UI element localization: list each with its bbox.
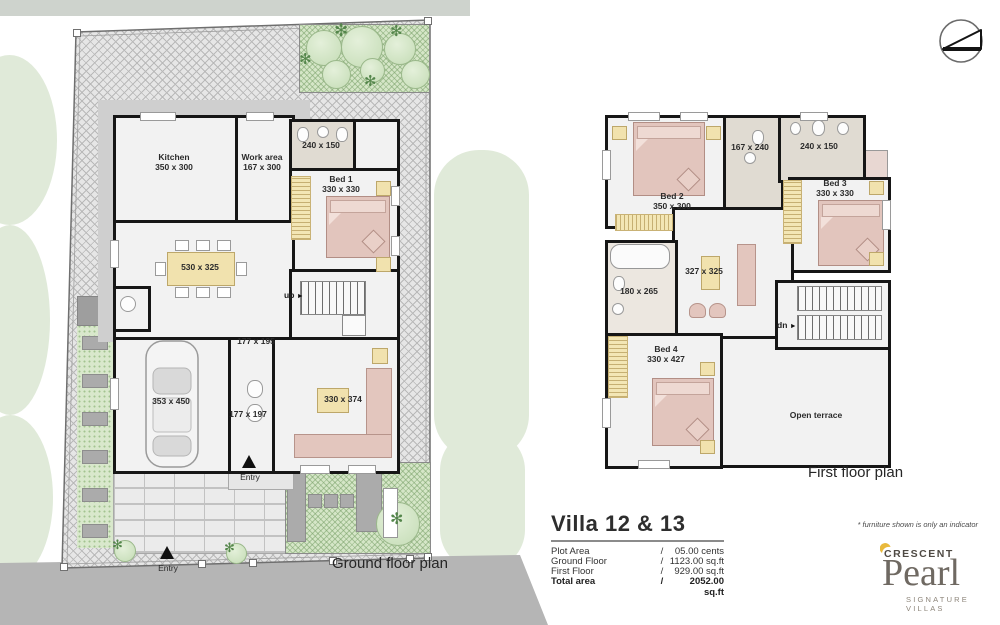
bed2-label: Bed 2350 x 300 [644, 191, 700, 211]
dining-chair [196, 240, 210, 251]
armchair [689, 303, 706, 318]
tree [322, 60, 351, 89]
brand-tagline: SIGNATURE VILLAS [906, 595, 1000, 613]
staircase-ground [300, 281, 366, 315]
dining-chair [236, 262, 247, 276]
first-floor-caption: First floor plan [808, 464, 903, 481]
passage2-label: 177 x 197 [222, 409, 274, 419]
fence-post [73, 29, 81, 37]
palm-icon: ✻ [334, 22, 348, 39]
quilt-diamond [676, 167, 700, 191]
window [602, 150, 611, 180]
side-table [376, 257, 391, 272]
info-row: Ground Floor/1123.00 sq.ft [551, 556, 724, 566]
window [348, 465, 376, 474]
pillow [637, 126, 701, 139]
dn-label: dn ► [777, 320, 797, 330]
bath2-label: 240 x 150 [790, 141, 848, 151]
staircase-first [797, 315, 882, 340]
sink-fixture [837, 122, 849, 135]
divider [551, 540, 724, 542]
sofa [737, 244, 756, 306]
side-lawn [77, 324, 113, 548]
bath3-label: 180 x 265 [612, 286, 666, 296]
entry-label: Entry [234, 472, 266, 482]
bath-label: 240 x 150 [292, 140, 350, 150]
kitchen-label: Kitchen350 x 300 [142, 152, 206, 172]
side-table [372, 348, 388, 364]
bed1-lobby [353, 119, 400, 174]
work-area-label: Work area167 x 300 [234, 152, 290, 172]
entry-arrow-icon [160, 546, 174, 559]
window [140, 112, 176, 121]
blanket-fold [821, 217, 833, 229]
window [110, 378, 119, 410]
bed4-furniture [652, 378, 714, 446]
side-table [700, 440, 715, 454]
dining-chair [175, 287, 189, 298]
bed1-label: Bed 1330 x 330 [312, 174, 370, 194]
window [638, 460, 670, 469]
side-table [869, 181, 884, 195]
window [602, 398, 611, 428]
side-table [612, 126, 627, 140]
window [391, 186, 400, 206]
landscape-blob [434, 150, 529, 460]
up-label: up ► [284, 290, 304, 300]
info-row: Plot Area/05.00 cents [551, 546, 724, 556]
tree [401, 60, 430, 89]
wardrobe [615, 214, 673, 231]
garden-tile [324, 494, 338, 508]
info-row-total: Total area/2052.00 sq.ft [551, 576, 724, 586]
stepping-stone [82, 374, 108, 388]
stepping-stone [82, 412, 108, 426]
palm-icon: ✻ [224, 541, 235, 554]
info-row: First Floor/929.00 sq.ft [551, 566, 724, 576]
wc-fixture [247, 380, 263, 398]
dining-chair [217, 240, 231, 251]
living-label: 330 x 374 [318, 394, 368, 404]
wardrobe [291, 176, 311, 240]
garage-label: 353 x 450 [143, 396, 199, 406]
dining-chair [217, 287, 231, 298]
direction-arrow-icon: ► [790, 323, 797, 330]
bed4-label: Bed 4330 x 427 [638, 344, 694, 364]
palm-icon: ✻ [390, 512, 403, 528]
entry-arrow-icon [242, 455, 256, 468]
hall-label: 327 x 325 [680, 266, 728, 276]
window [246, 112, 274, 121]
landscape-blob [0, 55, 57, 225]
sofa [294, 434, 392, 458]
sink-fixture [317, 126, 329, 138]
bed3-label: Bed 3330 x 330 [806, 178, 864, 198]
stair-landing [342, 315, 366, 336]
sink-fixture [612, 303, 624, 315]
side-table [869, 252, 884, 266]
wardrobe [608, 336, 628, 398]
window [300, 465, 330, 474]
direction-arrow-icon: ► [297, 293, 304, 300]
landscape-blob [0, 415, 53, 580]
fence-post [424, 17, 432, 25]
ground-floor-caption: Ground floor plan [332, 555, 448, 572]
garden-tile [340, 494, 354, 508]
furniture-disclaimer: * furniture shown is only an indicator [828, 520, 978, 529]
blanket-fold [636, 139, 648, 151]
dining-label: 530 x 325 [171, 262, 229, 272]
entry-label: Entry [152, 563, 184, 573]
dining-chair [175, 240, 189, 251]
side-table [706, 126, 721, 140]
armchair [709, 303, 726, 318]
wardrobe [783, 180, 802, 244]
quilt-diamond [685, 417, 709, 441]
pillow [822, 204, 880, 217]
bathroom-1 [723, 115, 784, 213]
villa-title: Villa 12 & 13 [551, 511, 686, 537]
fence-post [198, 560, 206, 568]
garden-tile [308, 494, 322, 508]
window [882, 200, 891, 230]
staircase-first [797, 286, 882, 311]
blanket-fold [329, 213, 341, 225]
palm-icon: ✻ [112, 538, 123, 551]
bed2-furniture [633, 122, 705, 196]
pillow [656, 382, 710, 395]
quilt-diamond [361, 229, 385, 253]
window [800, 112, 828, 121]
stepping-stone [82, 488, 108, 502]
palm-icon: ✻ [390, 24, 403, 39]
window [110, 240, 119, 268]
stepping-stone [82, 450, 108, 464]
terrace-label: Open terrace [786, 410, 846, 420]
pillow [330, 200, 386, 213]
window [680, 112, 708, 121]
sink-fixture [744, 152, 756, 164]
passage1-label: 177 x 195 [230, 336, 282, 346]
palm-icon: ✻ [364, 74, 377, 89]
window [391, 236, 400, 256]
bath1-label: 167 x 240 [722, 142, 778, 152]
fence-post [60, 563, 68, 571]
terrace-corridor [720, 336, 775, 388]
palm-icon: ✻ [299, 52, 312, 67]
sink-fixture [790, 122, 801, 135]
north-arrow-icon [936, 16, 986, 66]
landscape-blob [440, 430, 525, 570]
blanket-fold [655, 395, 667, 407]
bed1-furniture [326, 196, 390, 258]
dining-chair [155, 262, 166, 276]
wc-fixture [812, 120, 825, 136]
side-table [376, 181, 391, 196]
fence-post [249, 559, 257, 567]
stepping-stone [82, 524, 108, 538]
toilet-fixture [120, 296, 136, 312]
bathtub [610, 244, 670, 269]
floorplan-sheet: ✻ ✻ ✻ ✻ ✻ ✻ ✻ [0, 0, 1000, 625]
side-table [700, 362, 715, 376]
crescent-moon-icon [880, 543, 892, 555]
window [628, 112, 660, 121]
dining-chair [196, 287, 210, 298]
landscape-blob [0, 225, 50, 415]
brand-crescent: CRESCENT [884, 548, 954, 560]
